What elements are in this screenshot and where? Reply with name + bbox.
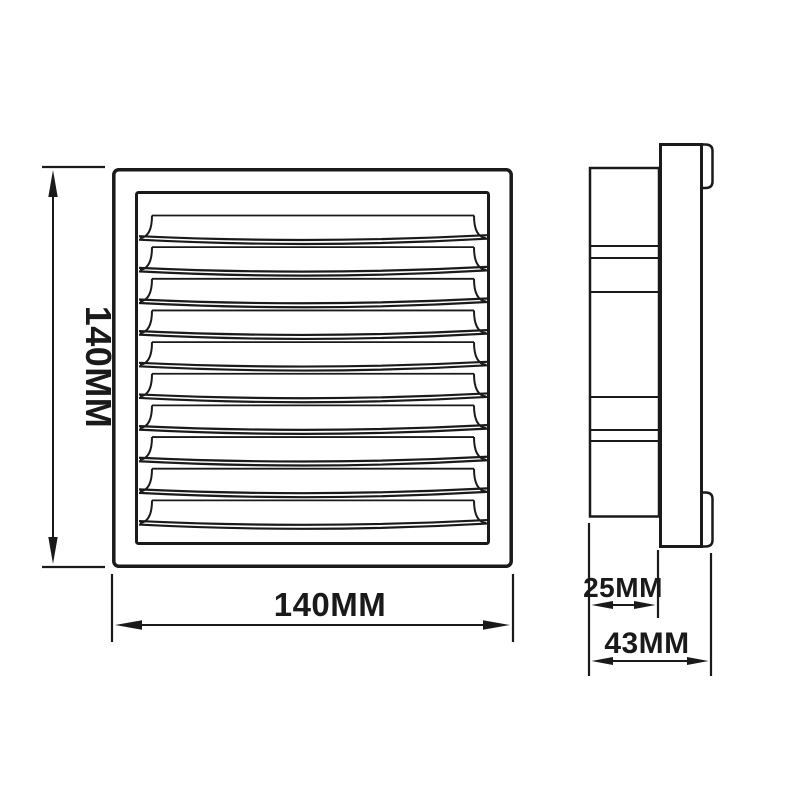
louver-line: [139, 299, 487, 304]
arrowhead-down-icon: [48, 537, 57, 564]
side-view: [590, 145, 713, 547]
louver-slat: [139, 279, 487, 307]
side-duct-body: [590, 168, 659, 517]
arrowhead-left-icon: [115, 620, 142, 629]
louver-line: [140, 405, 152, 428]
height-dimension-label: 140MM: [78, 306, 119, 429]
inner-depth-dimension-label: 25MM: [583, 572, 663, 603]
arrowhead-up-icon: [48, 170, 57, 197]
louver-line: [140, 500, 152, 523]
total-depth-dimension-label: 43MM: [604, 627, 689, 660]
front-view: [114, 170, 511, 566]
louver-grid: [139, 216, 487, 529]
width-dimension-label: 140MM: [274, 586, 387, 623]
height-dimension: 140MM: [42, 167, 119, 567]
louver-line: [139, 235, 487, 240]
louver-slat: [139, 247, 487, 275]
louver-line: [140, 469, 152, 492]
louver-line: [139, 362, 487, 367]
louver-slat: [139, 437, 487, 465]
louver-line: [140, 216, 152, 239]
vent-grille-technical-drawing: 140MM 140MM 25MM 43MM: [0, 0, 800, 800]
louver-slat: [139, 310, 487, 338]
louver-slat: [139, 500, 487, 528]
louver-line: [139, 425, 487, 430]
arrowhead-right-icon: [687, 657, 709, 665]
width-dimension: 140MM: [112, 574, 513, 642]
louver-slat: [139, 469, 487, 497]
arrowhead-right-icon: [483, 620, 510, 629]
louver-line: [139, 267, 487, 272]
louver-line: [140, 310, 152, 333]
louver-line: [140, 342, 152, 365]
louver-line: [139, 520, 487, 525]
louver-line: [140, 279, 152, 302]
louver-line: [140, 437, 152, 460]
louver-line: [139, 488, 487, 493]
louver-slat: [139, 374, 487, 402]
louver-line: [140, 374, 152, 397]
vent-grille-drawing-svg: 140MM 140MM 25MM 43MM: [0, 0, 800, 800]
louver-slat: [139, 405, 487, 433]
louver-slat: [139, 216, 487, 244]
louver-slat: [139, 342, 487, 370]
louver-line: [140, 247, 152, 270]
side-flange-panel: [661, 145, 702, 547]
louver-line: [139, 457, 487, 462]
louver-line: [139, 393, 487, 398]
louver-line: [139, 330, 487, 335]
